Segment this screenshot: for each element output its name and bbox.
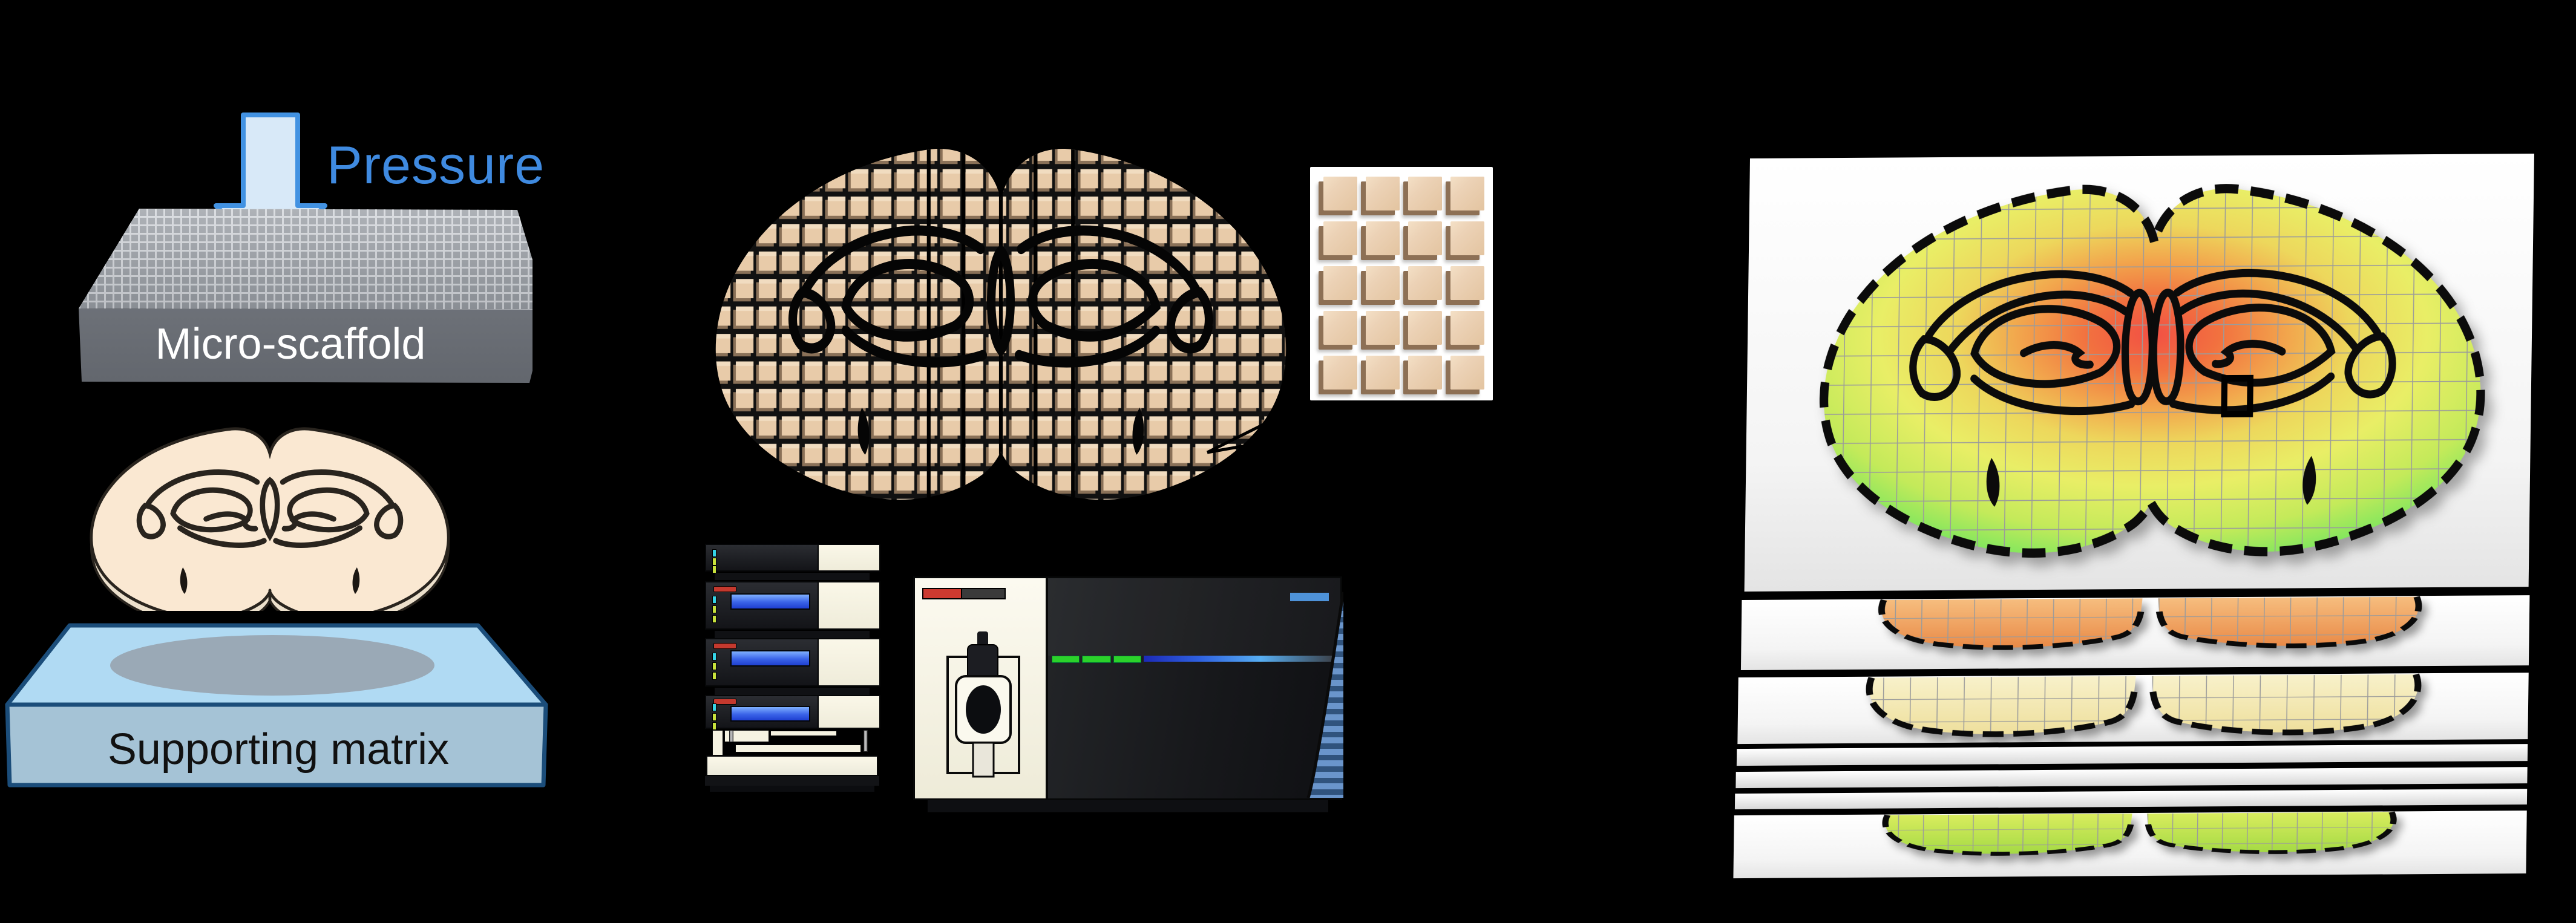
sample-cube (1323, 311, 1357, 345)
microscope-slide (1737, 673, 2528, 744)
microscope-slide (1733, 810, 2526, 878)
heatmap-brain-section (1787, 177, 2518, 568)
sample-cube (1323, 221, 1357, 255)
hplc-power-button (713, 643, 736, 649)
autosampler-part (770, 731, 837, 736)
slide-stack (1733, 154, 2548, 879)
brain-section-illustration (73, 422, 467, 611)
sample-cube (1450, 311, 1484, 345)
figure-canvas: Pressure Micro-scaffold (0, 0, 2576, 923)
hplc-screen (730, 593, 810, 610)
hplc-module (705, 638, 879, 687)
micro-sample-inset (1310, 167, 1493, 400)
partial-section-pale-yellow (1855, 673, 2431, 739)
pressure-label: Pressure (327, 134, 545, 196)
hplc-stack-icon (705, 543, 880, 792)
autosampler-rod (729, 730, 733, 742)
microscope-slide (1745, 154, 2534, 592)
microscope-slide (1741, 595, 2529, 670)
matrix-shadow-ellipse (110, 635, 434, 696)
sample-cube (1323, 356, 1357, 390)
hplc-power-button (713, 586, 736, 592)
hplc-module (705, 581, 879, 630)
sample-cube (1323, 177, 1357, 210)
autosampler-part (712, 730, 723, 755)
sample-cube (1366, 356, 1400, 390)
microscope-slide-edge (1735, 789, 2527, 809)
supporting-matrix-label: Supporting matrix (39, 725, 517, 774)
sample-cube (1366, 221, 1400, 255)
partial-section-yellow-green (1873, 811, 2406, 856)
ms-plinth (928, 800, 1328, 812)
microscope-slide-edge (1735, 767, 2527, 788)
hplc-plinth (705, 776, 879, 786)
sample-cube (1450, 356, 1484, 390)
sample-cube (1450, 177, 1484, 210)
hplc-screen (730, 650, 810, 667)
sample-cube (1408, 266, 1442, 300)
autosampler-drawer (735, 745, 861, 752)
sample-cube (1408, 177, 1442, 210)
ms-display-stripe (1052, 656, 1080, 663)
ms-brand-badge (922, 588, 962, 599)
sample-cube (1408, 311, 1442, 345)
hplc-module (705, 544, 879, 572)
mass-spectrometer-source-panel (913, 576, 1047, 800)
sample-cube (1450, 221, 1484, 255)
sample-cube (1323, 266, 1357, 300)
sample-cube (1366, 311, 1400, 345)
sample-cube (1408, 356, 1442, 390)
hplc-base (706, 755, 878, 776)
autosampler-rod (864, 730, 868, 752)
sample-cube (1366, 177, 1400, 210)
sample-cube (1450, 266, 1484, 300)
hplc-screen (730, 706, 810, 722)
sample-cube (1366, 266, 1400, 300)
microscope-slide-edge (1737, 744, 2528, 766)
micro-scaffold-plate: Micro-scaffold (36, 206, 533, 387)
ms-ion-source-icon (939, 627, 1030, 784)
ms-striped-side (1288, 576, 1343, 800)
hplc-power-button (713, 699, 736, 705)
hplc-module (705, 695, 879, 729)
partial-section-orange (1868, 596, 2431, 651)
micro-scaffold-label: Micro-scaffold (79, 319, 502, 369)
sample-cube (1408, 221, 1442, 255)
